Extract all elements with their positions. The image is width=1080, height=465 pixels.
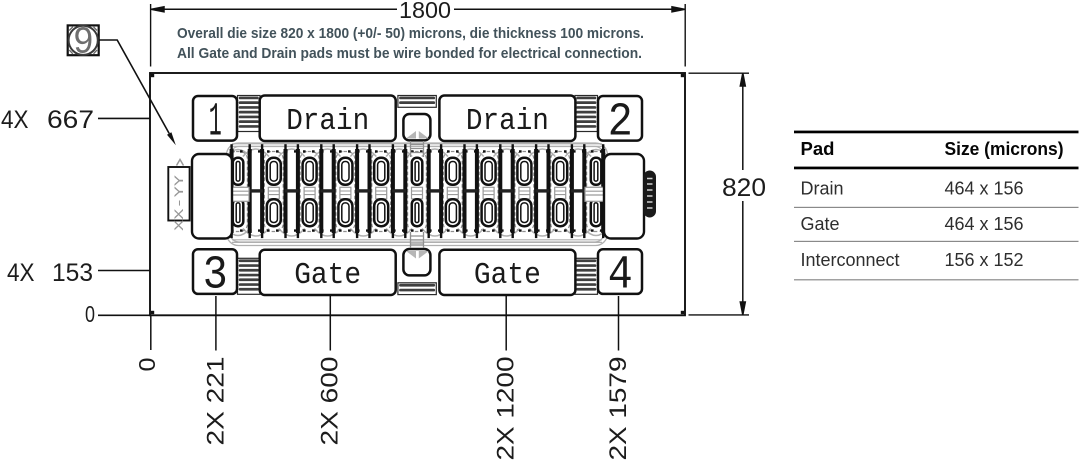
svg-text:3: 3	[203, 250, 228, 303]
svg-text:156 x 152: 156 x 152	[945, 250, 1024, 270]
svg-text:0: 0	[85, 301, 95, 327]
svg-text:Drain: Drain	[286, 104, 369, 139]
svg-text:All Gate and Drain pads must b: All Gate and Drain pads must be wire bon…	[177, 45, 642, 62]
svg-text:4: 4	[608, 250, 633, 303]
svg-text:XX-YY: XX-YY	[172, 175, 187, 231]
svg-text:4X667: 4X667	[1, 106, 94, 134]
svg-text:Drain: Drain	[801, 179, 844, 199]
svg-text:464 x 156: 464 x 156	[945, 214, 1024, 234]
svg-text:2: 2	[608, 97, 633, 150]
svg-text:Gate: Gate	[801, 214, 840, 234]
svg-text:9: 9	[73, 22, 94, 65]
svg-text:Drain: Drain	[466, 104, 549, 139]
svg-text:Size (microns): Size (microns)	[945, 138, 1064, 159]
svg-text:820: 820	[722, 174, 766, 202]
svg-text:Pad: Pad	[801, 138, 835, 159]
svg-text:464 x 156: 464 x 156	[945, 179, 1024, 199]
svg-text:Overall die size 820 x 1800 (+: Overall die size 820 x 1800 (+0/- 50) mi…	[177, 25, 644, 42]
svg-text:2X 1200: 2X 1200	[493, 357, 520, 461]
svg-text:1: 1	[209, 97, 222, 150]
svg-text:2X 1579: 2X 1579	[605, 357, 632, 461]
svg-text:0: 0	[134, 358, 160, 372]
svg-text:2X 221: 2X 221	[202, 357, 229, 446]
svg-text:Interconnect: Interconnect	[801, 250, 900, 270]
svg-text:Gate: Gate	[294, 258, 361, 293]
svg-text:4X153: 4X153	[7, 259, 93, 287]
svg-text:1800: 1800	[399, 0, 451, 23]
svg-text:2X 600: 2X 600	[317, 357, 344, 446]
svg-text:Gate: Gate	[474, 258, 541, 293]
